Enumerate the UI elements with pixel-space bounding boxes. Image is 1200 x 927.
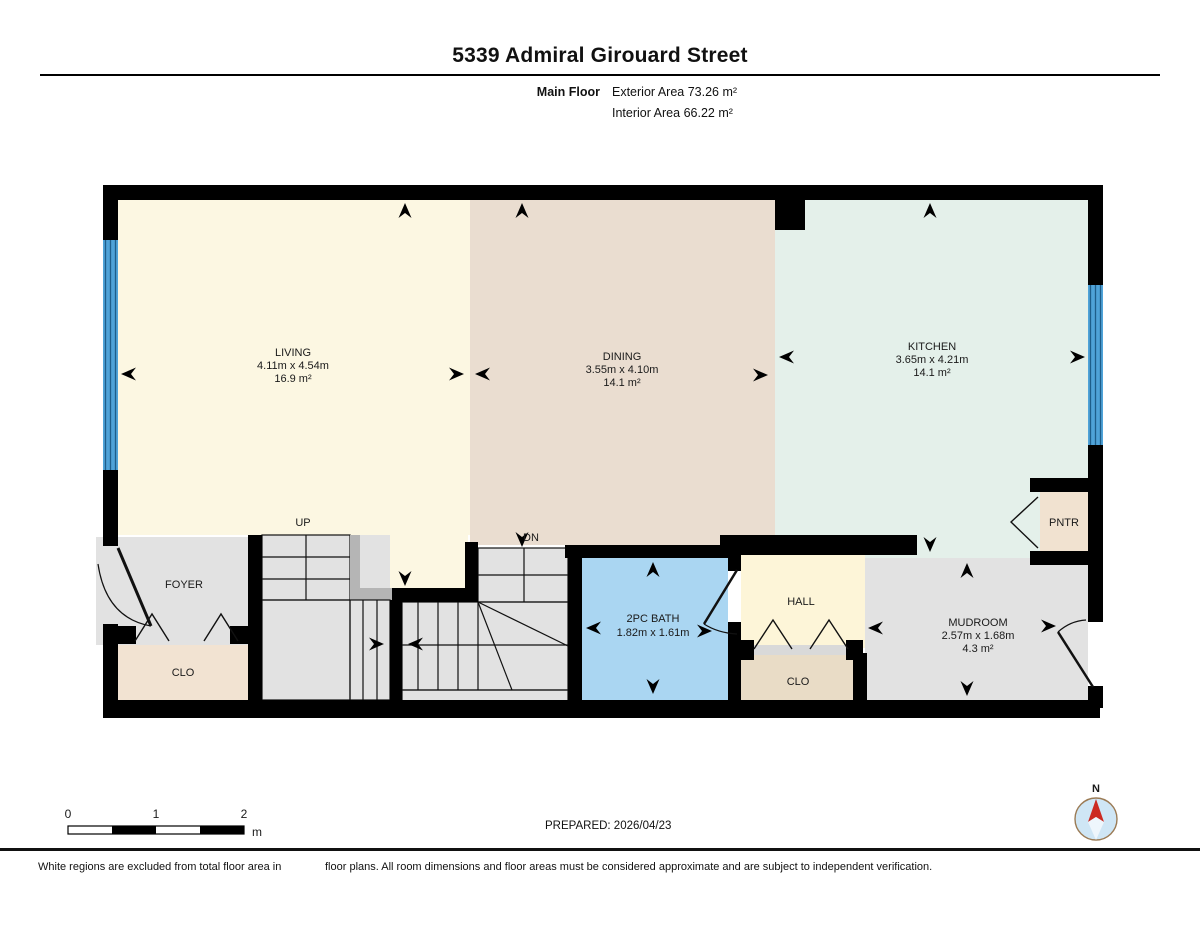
svg-text:MUDROOM: MUDROOM	[948, 617, 1007, 629]
floorplan-page: 5339 Admiral Girouard Street Main Floor …	[0, 0, 1200, 927]
svg-text:16.9 m²: 16.9 m²	[274, 373, 312, 385]
svg-text:1.82m x 1.61m: 1.82m x 1.61m	[617, 627, 690, 639]
room-label-hall-closet: CLO	[787, 676, 810, 688]
left-window	[103, 240, 118, 470]
compass-icon: N	[1075, 783, 1117, 840]
right-window	[1088, 285, 1103, 445]
svg-text:DINING: DINING	[603, 351, 642, 363]
svg-text:3.65m x 4.21m: 3.65m x 4.21m	[896, 354, 969, 366]
stairs-up-label: UP	[295, 517, 310, 529]
svg-text:KITCHEN: KITCHEN	[908, 341, 956, 353]
compass-north-label: N	[1092, 783, 1100, 795]
svg-text:14.1 m²: 14.1 m²	[603, 377, 641, 389]
room-label-hall: HALL	[787, 596, 815, 608]
svg-text:4.3 m²: 4.3 m²	[962, 643, 994, 655]
scale-bar: 0 1 2 m	[65, 807, 262, 839]
svg-text:2PC BATH: 2PC BATH	[627, 613, 680, 625]
footer-divider	[0, 848, 1200, 851]
svg-text:3.55m x 4.10m: 3.55m x 4.10m	[586, 364, 659, 376]
svg-text:14.1 m²: 14.1 m²	[913, 367, 951, 379]
disclaimer-right: floor plans. All room dimensions and flo…	[325, 861, 932, 873]
svg-text:2.57m x 1.68m: 2.57m x 1.68m	[942, 630, 1015, 642]
svg-text:0: 0	[65, 807, 72, 821]
disclaimer-left: White regions are excluded from total fl…	[38, 861, 281, 873]
prepared-date: PREPARED: 2026/04/23	[545, 820, 671, 832]
stairs-down-label: DN	[523, 532, 539, 544]
room-label-pantry: PNTR	[1049, 517, 1079, 529]
svg-text:2: 2	[241, 807, 248, 821]
svg-text:1: 1	[153, 807, 160, 821]
room-label-foyer: FOYER	[165, 579, 203, 591]
scale-unit: m	[252, 825, 262, 839]
room-label-foyer-closet: CLO	[172, 667, 195, 679]
floorplan-canvas: LIVING 4.11m x 4.54m 16.9 m² DINING 3.55…	[0, 0, 1200, 927]
svg-text:4.11m x 4.54m: 4.11m x 4.54m	[257, 360, 329, 372]
svg-text:LIVING: LIVING	[275, 347, 311, 359]
